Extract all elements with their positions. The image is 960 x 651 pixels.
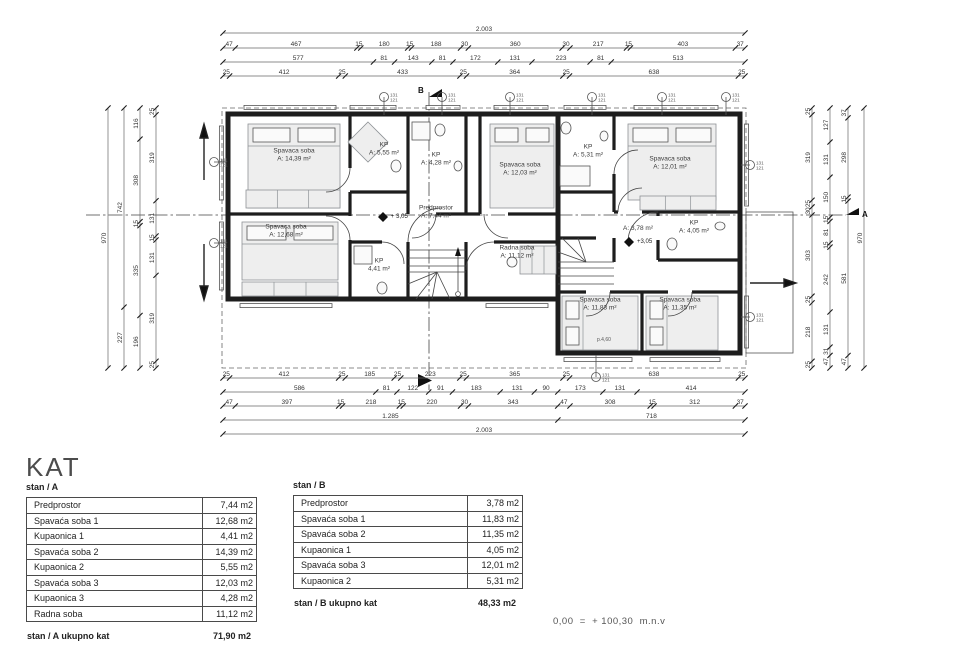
- svg-text:131: 131: [509, 55, 520, 62]
- table-row: Spavaća soba 112,68 m2: [27, 514, 256, 530]
- table-row: Spavaća soba 211,35 m2: [294, 527, 522, 543]
- table-row: Spavaća soba 111,83 m2: [294, 512, 522, 528]
- svg-text:131: 131: [823, 154, 830, 165]
- svg-text:308: 308: [133, 175, 140, 186]
- svg-text:223: 223: [425, 371, 436, 378]
- room-label: Spavaca soba A: 12,68 m²: [265, 224, 306, 241]
- section-b-letter-top: B: [418, 86, 424, 95]
- room-label: KP A: 4,05 m²: [679, 220, 709, 237]
- svg-text:143: 143: [408, 55, 419, 62]
- svg-text:360: 360: [510, 41, 521, 48]
- room-name: KP: [368, 258, 390, 266]
- level-mark-b: +3,05: [637, 239, 652, 245]
- table-row: Kupaonica 14,05 m2: [294, 543, 522, 559]
- svg-text:308: 308: [605, 399, 616, 406]
- table-b-header: stan / B: [293, 480, 523, 490]
- svg-text:223: 223: [556, 55, 567, 62]
- svg-text:25: 25: [149, 107, 156, 115]
- svg-text:970: 970: [857, 232, 864, 243]
- svg-text:31: 31: [823, 347, 830, 355]
- svg-text:343: 343: [508, 399, 519, 406]
- room-label: KP A: 5,31 m²: [573, 144, 603, 161]
- table-row: Predprostor3,78 m2: [294, 496, 522, 512]
- room-label: Spavaca soba A: 11,35 m²: [659, 297, 700, 314]
- svg-text:30: 30: [562, 41, 570, 48]
- svg-text:30: 30: [461, 41, 469, 48]
- svg-text:25: 25: [459, 371, 467, 378]
- svg-text:513: 513: [673, 55, 684, 62]
- svg-text:90: 90: [542, 385, 550, 392]
- svg-text:218: 218: [805, 326, 812, 337]
- level-mark-a: + 3,05: [391, 214, 408, 220]
- dimension-chains-layer: 2.00347467151801518830360302171540337577…: [101, 26, 867, 437]
- room-area: A: 5,55 m²: [369, 150, 399, 158]
- room-name: Spavaca soba: [649, 156, 690, 164]
- svg-text:2.003: 2.003: [476, 26, 493, 33]
- svg-text:25: 25: [223, 371, 231, 378]
- svg-text:319: 319: [805, 152, 812, 163]
- room-label: Spavaca soba A: 11,83 m²: [579, 297, 620, 314]
- svg-text:121: 121: [448, 98, 456, 103]
- svg-text:467: 467: [291, 41, 302, 48]
- svg-text:172: 172: [470, 55, 481, 62]
- room-area: A: 5,31 m²: [573, 152, 603, 160]
- svg-text:116: 116: [133, 118, 140, 129]
- svg-text:25: 25: [460, 69, 468, 76]
- svg-text:217: 217: [593, 41, 604, 48]
- table-a-box: Predprostor7,44 m2 Spavaća soba 112,68 m…: [26, 497, 257, 622]
- svg-text:122: 122: [407, 385, 418, 392]
- room-label: KP 4,41 m²: [368, 258, 390, 275]
- floor-plan-sheet: .w5{stroke:#1d1d1d;stroke-width:5;fill:n…: [0, 0, 960, 651]
- svg-text:183: 183: [471, 385, 482, 392]
- room-area: A: 4,05 m²: [679, 228, 709, 236]
- svg-text:718: 718: [646, 413, 657, 420]
- room-label: KP A: 5,55 m²: [369, 142, 399, 159]
- svg-text:47: 47: [560, 399, 568, 406]
- room-name: Spavaca soba: [265, 224, 306, 232]
- svg-text:242: 242: [823, 274, 830, 285]
- svg-text:397: 397: [282, 399, 293, 406]
- svg-text:81: 81: [823, 228, 830, 236]
- svg-text:185: 185: [364, 371, 375, 378]
- svg-text:412: 412: [279, 69, 290, 76]
- svg-text:127: 127: [823, 119, 830, 130]
- table-row: Kupaonica 25,55 m2: [27, 560, 256, 576]
- room-area: 4,41 m²: [368, 266, 390, 274]
- table-row: Kupaonica 34,28 m2: [27, 591, 256, 607]
- svg-text:365: 365: [509, 371, 520, 378]
- table-row: Spavaća soba 214,39 m2: [27, 545, 256, 561]
- section-a-letter: A: [862, 210, 868, 219]
- room-label: KP A: 4,28 m²: [421, 152, 451, 169]
- svg-text:121: 121: [220, 244, 228, 249]
- room-label: A: 3,78 m²: [623, 225, 653, 233]
- room-name: Spavaca soba: [273, 148, 314, 156]
- room-area: A: 12,68 m²: [265, 232, 306, 240]
- elevation-note: 0,00 = + 100,30 m.n.v: [553, 616, 665, 627]
- svg-text:25: 25: [394, 371, 402, 378]
- svg-text:121: 121: [516, 98, 524, 103]
- svg-text:188: 188: [431, 41, 442, 48]
- room-area: A: 4,28 m²: [421, 160, 451, 168]
- svg-text:25: 25: [805, 107, 812, 115]
- room-area: A: 7,44 m²: [419, 213, 453, 221]
- room-name: Predprostor: [419, 205, 453, 213]
- table-row: Kupaonica 14,41 m2: [27, 529, 256, 545]
- svg-text:25: 25: [338, 371, 346, 378]
- table-a-header: stan / A: [26, 482, 257, 492]
- room-name: Radna soba: [499, 245, 534, 253]
- svg-text:25: 25: [738, 371, 746, 378]
- table-row: Kupaonica 25,31 m2: [294, 574, 522, 589]
- table-row: Spavaća soba 312,01 m2: [294, 558, 522, 574]
- svg-text:47: 47: [226, 41, 234, 48]
- svg-text:298: 298: [841, 152, 848, 163]
- room-label: Spavaca soba A: 12,03 m²: [499, 162, 540, 179]
- svg-text:25: 25: [223, 69, 231, 76]
- svg-text:121: 121: [390, 98, 398, 103]
- svg-text:403: 403: [677, 41, 688, 48]
- svg-text:121: 121: [220, 163, 228, 168]
- room-name: KP: [421, 152, 451, 160]
- room-area: A: 11,12 m²: [499, 253, 534, 261]
- svg-text:121: 121: [668, 98, 676, 103]
- svg-text:81: 81: [383, 385, 391, 392]
- room-label: Spavaca soba A: 12,01 m²: [649, 156, 690, 173]
- svg-text:25: 25: [805, 361, 812, 369]
- svg-text:81: 81: [439, 55, 447, 62]
- svg-text:364: 364: [509, 69, 520, 76]
- page-title: KAT: [26, 452, 81, 483]
- room-name: KP: [369, 142, 399, 150]
- table-row: Spavaća soba 312,03 m2: [27, 576, 256, 592]
- room-area: A: 12,03 m²: [499, 170, 540, 178]
- room-label: Spavaca soba A: 14,39 m²: [273, 148, 314, 165]
- svg-text:180: 180: [379, 41, 390, 48]
- svg-text:638: 638: [649, 371, 660, 378]
- room-name: KP: [573, 144, 603, 152]
- svg-text:173: 173: [575, 385, 586, 392]
- svg-text:131: 131: [149, 252, 156, 263]
- svg-text:1.285: 1.285: [382, 413, 399, 420]
- svg-text:25: 25: [563, 371, 571, 378]
- svg-text:121: 121: [598, 98, 606, 103]
- floor-plan-drawing: .w5{stroke:#1d1d1d;stroke-width:5;fill:n…: [0, 0, 960, 460]
- table-a-total: stan / A ukupno kat 71,90 m2: [26, 631, 257, 641]
- svg-text:25: 25: [805, 200, 812, 208]
- room-area: A: 14,39 m²: [273, 156, 314, 164]
- svg-text:47: 47: [841, 358, 848, 366]
- table-row: Predprostor7,44 m2: [27, 498, 256, 514]
- svg-text:37: 37: [841, 109, 848, 117]
- svg-text:335: 335: [133, 265, 140, 276]
- svg-text:414: 414: [686, 385, 697, 392]
- svg-text:196: 196: [133, 336, 140, 347]
- svg-text:131: 131: [149, 213, 156, 224]
- svg-text:581: 581: [841, 272, 848, 283]
- svg-text:91: 91: [437, 385, 445, 392]
- svg-text:412: 412: [279, 371, 290, 378]
- svg-text:25: 25: [149, 361, 156, 369]
- svg-text:319: 319: [149, 312, 156, 323]
- svg-text:227: 227: [117, 332, 124, 343]
- svg-text:81: 81: [597, 55, 605, 62]
- table-b-total: stan / B ukupno kat 48,33 m2: [293, 598, 523, 608]
- table-stan-a: stan / A Predprostor7,44 m2 Spavaća soba…: [26, 482, 257, 641]
- room-name: Spavaca soba: [659, 297, 700, 305]
- svg-text:218: 218: [366, 399, 377, 406]
- room-area: A: 11,35 m²: [659, 305, 700, 313]
- svg-text:25: 25: [805, 296, 812, 304]
- svg-text:131: 131: [823, 324, 830, 335]
- svg-text:638: 638: [649, 69, 660, 76]
- svg-text:47: 47: [823, 358, 830, 366]
- svg-text:150: 150: [823, 191, 830, 202]
- svg-text:131: 131: [512, 385, 523, 392]
- svg-text:577: 577: [293, 55, 304, 62]
- table-row: Radna soba11,12 m2: [27, 607, 256, 622]
- parapet-label: p.4,60: [597, 337, 611, 343]
- svg-text:319: 319: [149, 152, 156, 163]
- room-name: Spavaca soba: [499, 162, 540, 170]
- svg-text:312: 312: [689, 399, 700, 406]
- svg-text:81: 81: [380, 55, 388, 62]
- svg-text:30: 30: [805, 207, 812, 215]
- svg-text:30: 30: [461, 399, 469, 406]
- floor-plan-area: .w5{stroke:#1d1d1d;stroke-width:5;fill:n…: [0, 0, 960, 460]
- room-area: A: 11,83 m²: [579, 305, 620, 313]
- room-label: Predprostor A: 7,44 m²: [419, 205, 453, 222]
- svg-text:131: 131: [615, 385, 626, 392]
- table-stan-b: stan / B Predprostor3,78 m2 Spavaća soba…: [293, 480, 523, 608]
- svg-text:742: 742: [117, 202, 124, 213]
- svg-text:2.003: 2.003: [476, 427, 493, 434]
- room-label: Radna soba A: 11,12 m²: [499, 245, 534, 262]
- svg-text:121: 121: [756, 318, 764, 323]
- svg-text:220: 220: [426, 399, 437, 406]
- svg-text:25: 25: [338, 69, 346, 76]
- room-name: Spavaca soba: [579, 297, 620, 305]
- svg-text:121: 121: [756, 166, 764, 171]
- svg-text:586: 586: [294, 385, 305, 392]
- svg-text:47: 47: [226, 399, 234, 406]
- table-b-box: Predprostor3,78 m2 Spavaća soba 111,83 m…: [293, 495, 523, 589]
- svg-text:37: 37: [737, 41, 745, 48]
- svg-text:433: 433: [397, 69, 408, 76]
- svg-text:37: 37: [737, 399, 745, 406]
- svg-text:121: 121: [732, 98, 740, 103]
- room-name: KP: [679, 220, 709, 228]
- svg-text:25: 25: [563, 69, 571, 76]
- svg-text:25: 25: [738, 69, 746, 76]
- room-area: A: 12,01 m²: [649, 164, 690, 172]
- svg-text:303: 303: [805, 250, 812, 261]
- svg-text:970: 970: [101, 232, 108, 243]
- room-area: A: 3,78 m²: [623, 225, 653, 233]
